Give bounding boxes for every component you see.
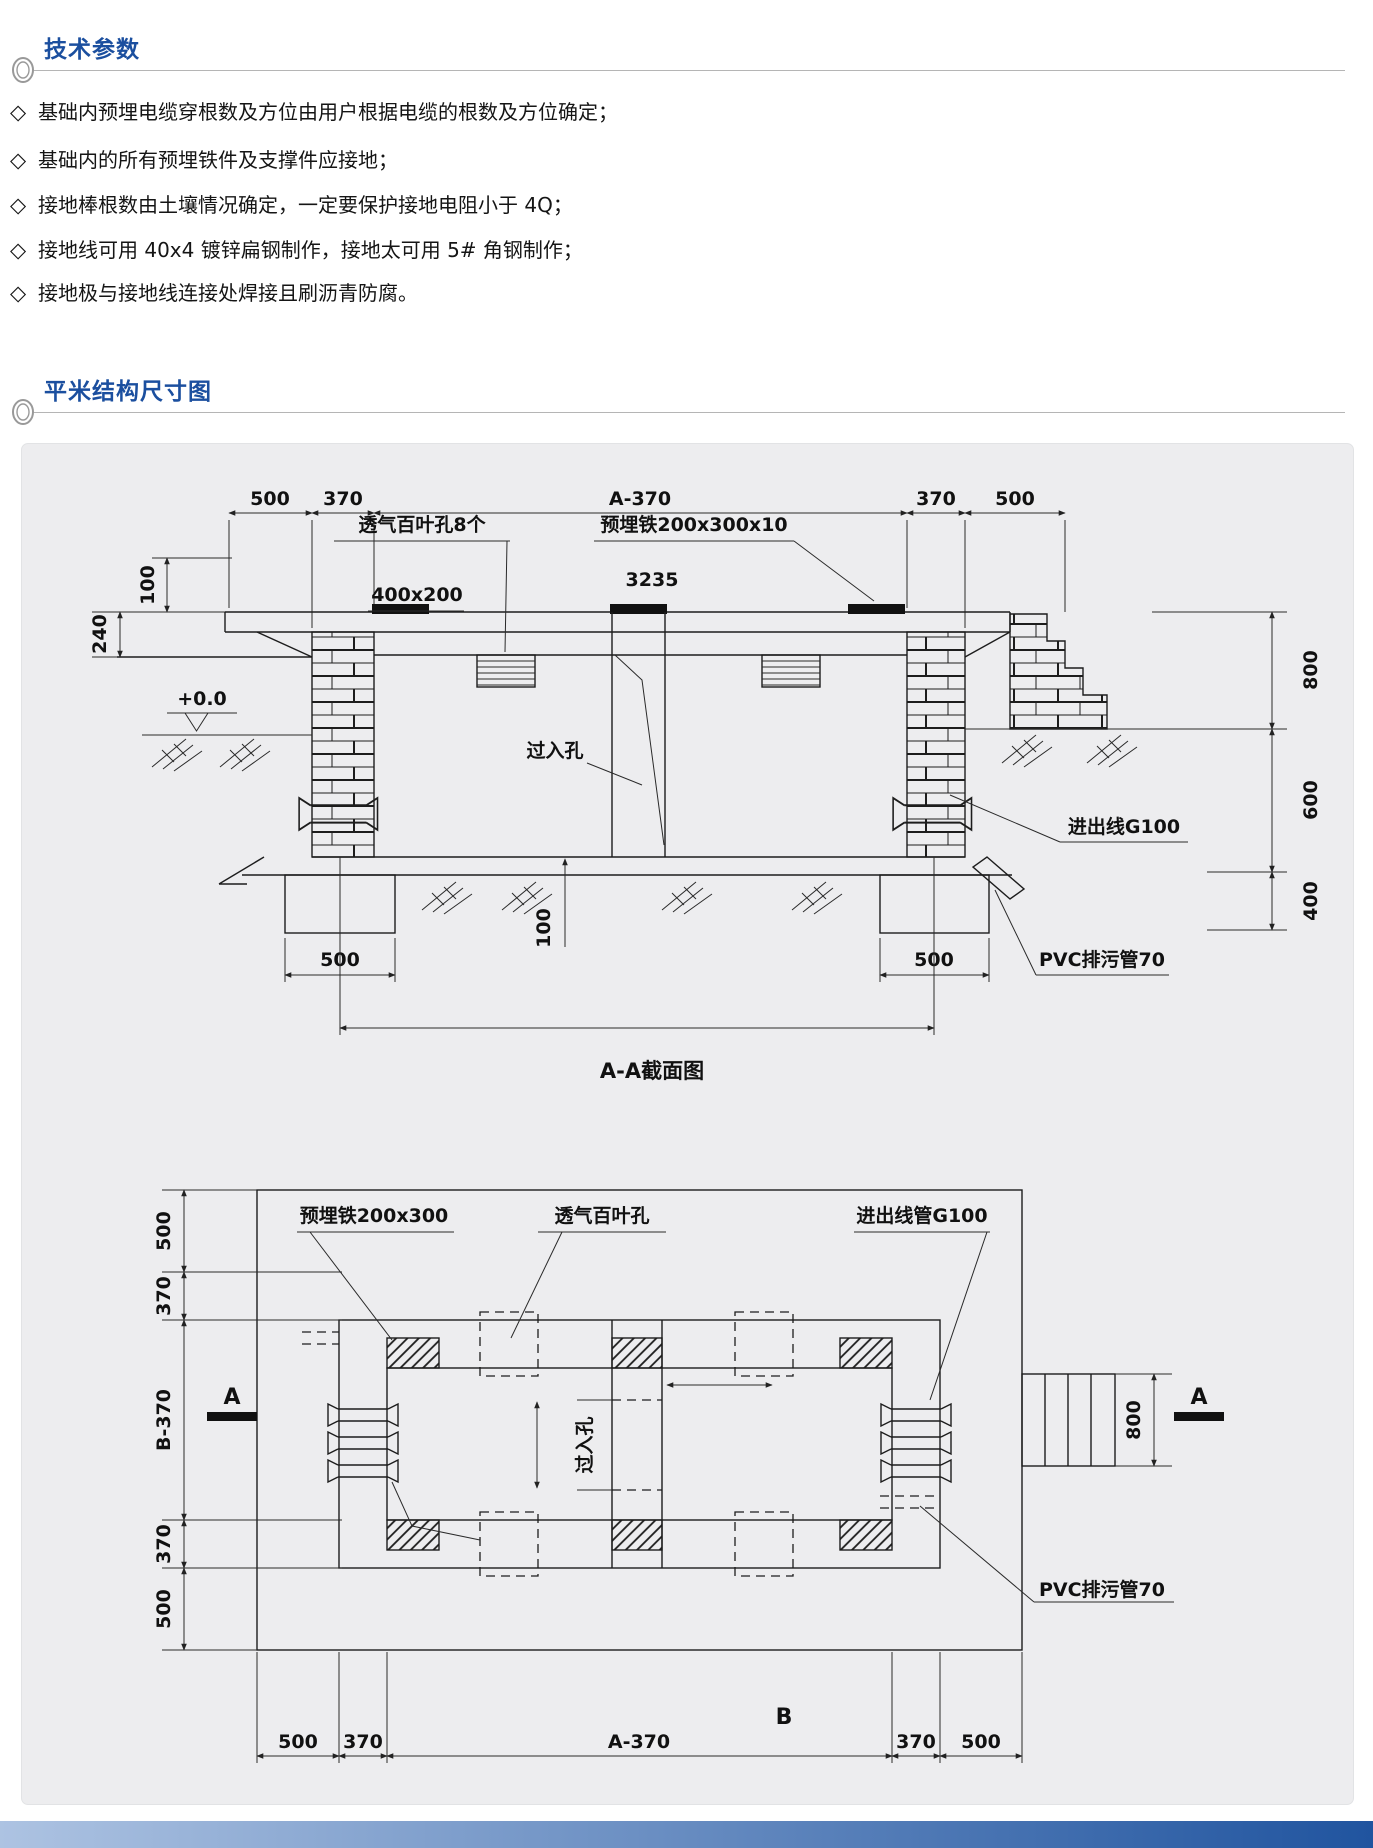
vent-louver <box>477 655 535 687</box>
circle-ornament-icon <box>11 398 35 426</box>
bullet-text: 接地线可用 40x4 镀锌扁钢制作，接地太可用 5# 角钢制作； <box>38 236 583 264</box>
section-labels: 透气百叶孔8个 预埋铁200x300x10 3235 400x200 过入孔 进… <box>334 513 1188 975</box>
footer-gradient-bar <box>0 1821 1373 1848</box>
vent-louver <box>762 655 820 687</box>
dim-label: 800 <box>1123 1400 1145 1440</box>
conduit-label: 进出线G100 <box>1068 815 1180 838</box>
bullet-item: ◇接地极与接地线连接处焊接且刷沥青防腐。 <box>10 279 1350 307</box>
dim-label: 600 <box>1300 780 1322 820</box>
section-bottom-dims: 500 500 100 <box>285 857 989 1035</box>
dim-label: 370 <box>323 488 363 510</box>
wall-inner <box>387 1368 892 1520</box>
pvc-label: PVC排污管70 <box>1039 1578 1165 1601</box>
bullet-text: 接地棒根数由土壤情况确定，一定要保护接地电阻小于 4Q； <box>38 191 573 219</box>
dim-label: 800 <box>1300 650 1322 690</box>
structure-dim-title: 平米结构尺寸图 <box>44 372 212 406</box>
pvc-label: PVC排污管70 <box>1039 948 1165 971</box>
right-protrusion: 800 <box>1022 1374 1172 1466</box>
dim-label: A-370 <box>608 1731 670 1753</box>
manhole-label: 过入孔 <box>526 740 583 762</box>
section-right-dims: 800 600 400 <box>1152 612 1322 930</box>
section-structure: +0.0 <box>117 604 1287 933</box>
dim-label: 370 <box>343 1731 383 1753</box>
catalog-page: 技术参数 ◇基础内预埋电缆穿根数及方位由用户根据电缆的根数及方位确定； ◇基础内… <box>0 0 1373 1848</box>
dim-label: 3235 <box>626 569 679 591</box>
dim-label: 500 <box>278 1731 318 1753</box>
section-marker-left: A <box>207 1385 257 1421</box>
plan-pvc-label: PVC排污管70 <box>920 1506 1174 1602</box>
embedded-iron-plates <box>387 1338 892 1550</box>
bullet-item: ◇接地线可用 40x4 镀锌扁钢制作，接地太可用 5# 角钢制作； <box>10 236 1350 264</box>
diamond-icon: ◇ <box>10 98 38 126</box>
dim-label: 500 <box>961 1731 1001 1753</box>
plan-view: 过入孔 800 A <box>153 1190 1224 1763</box>
pvc-pipe-dashed <box>880 1496 940 1508</box>
tech-params-title: 技术参数 <box>44 30 140 64</box>
marker-label: A <box>223 1385 240 1410</box>
iron-label: 预埋铁200x300 <box>300 1204 449 1227</box>
plan-top-labels: 预埋铁200x300 透气百叶孔 进出线管G100 <box>297 1204 990 1400</box>
diamond-icon: ◇ <box>10 279 38 307</box>
technical-drawing: 500 370 A-370 370 500 100 240 <box>22 444 1353 1802</box>
dim-label: 370 <box>916 488 956 510</box>
bullet-text: 基础内的所有预埋铁件及支撑件应接地； <box>38 146 398 174</box>
bullet-item: ◇接地棒根数由土壤情况确定，一定要保护接地电阻小于 4Q； <box>10 191 1350 219</box>
plan-bottom-dims: B 500 370 A-370 370 500 <box>257 1652 1022 1763</box>
diamond-icon: ◇ <box>10 236 38 264</box>
dim-label: 100 <box>137 565 159 605</box>
cover-label: 400x200 <box>371 584 463 606</box>
section-marker-right: A <box>1174 1385 1224 1421</box>
iron-label: 预埋铁200x300x10 <box>600 513 787 536</box>
bullet-item: ◇基础内的所有预埋铁件及支撑件应接地； <box>10 146 1350 174</box>
stepped-brick-wall <box>1010 614 1107 729</box>
bullet-text: 接地极与接地线连接处焊接且刷沥青防腐。 <box>38 279 418 307</box>
dim-label: 500 <box>153 1589 175 1629</box>
manhole: 过入孔 <box>537 1385 772 1490</box>
dim-label: A-370 <box>609 488 671 510</box>
circle-ornament-icon <box>11 56 35 84</box>
dim-label: 370 <box>153 1524 175 1564</box>
conduits <box>328 1404 951 1482</box>
level-triangle-icon <box>185 713 208 731</box>
dim-label: 240 <box>89 614 111 654</box>
center-column <box>612 612 665 857</box>
drawing-panel: 500 370 A-370 370 500 100 240 <box>21 443 1354 1805</box>
conduit-label: 进出线管G100 <box>856 1204 987 1227</box>
vent-label: 透气百叶孔 <box>554 1204 649 1227</box>
dim-label: 100 <box>533 908 555 948</box>
section-view: 500 370 A-370 370 500 100 240 <box>89 488 1322 1083</box>
marker-label: A <box>1190 1385 1207 1410</box>
title-rule <box>30 412 1345 413</box>
bullet-text: 基础内预埋电缆穿根数及方位由用户根据电缆的根数及方位确定； <box>38 98 618 126</box>
title-rule <box>30 70 1345 71</box>
dim-label: 370 <box>896 1731 936 1753</box>
embedded-iron-plate <box>610 604 667 614</box>
dim-label: 400 <box>1300 881 1322 921</box>
bullet-item: ◇基础内预埋电缆穿根数及方位由用户根据电缆的根数及方位确定； <box>10 98 1350 126</box>
dim-label: 370 <box>153 1276 175 1316</box>
manhole-label: 过入孔 <box>574 1416 596 1473</box>
dim-label: 500 <box>153 1211 175 1251</box>
dim-label: 500 <box>250 488 290 510</box>
b-label: B <box>776 1705 793 1730</box>
vent-label: 透气百叶孔8个 <box>358 513 486 536</box>
diamond-icon: ◇ <box>10 191 38 219</box>
diamond-icon: ◇ <box>10 146 38 174</box>
pit-outline <box>257 1190 1022 1650</box>
embedded-iron-plate <box>848 604 905 614</box>
level-label: +0.0 <box>177 688 227 710</box>
dim-label: B-370 <box>153 1389 175 1451</box>
dim-label: 500 <box>995 488 1035 510</box>
pvc-drain-pipe <box>973 857 1024 899</box>
section-caption: A-A截面图 <box>600 1059 704 1083</box>
